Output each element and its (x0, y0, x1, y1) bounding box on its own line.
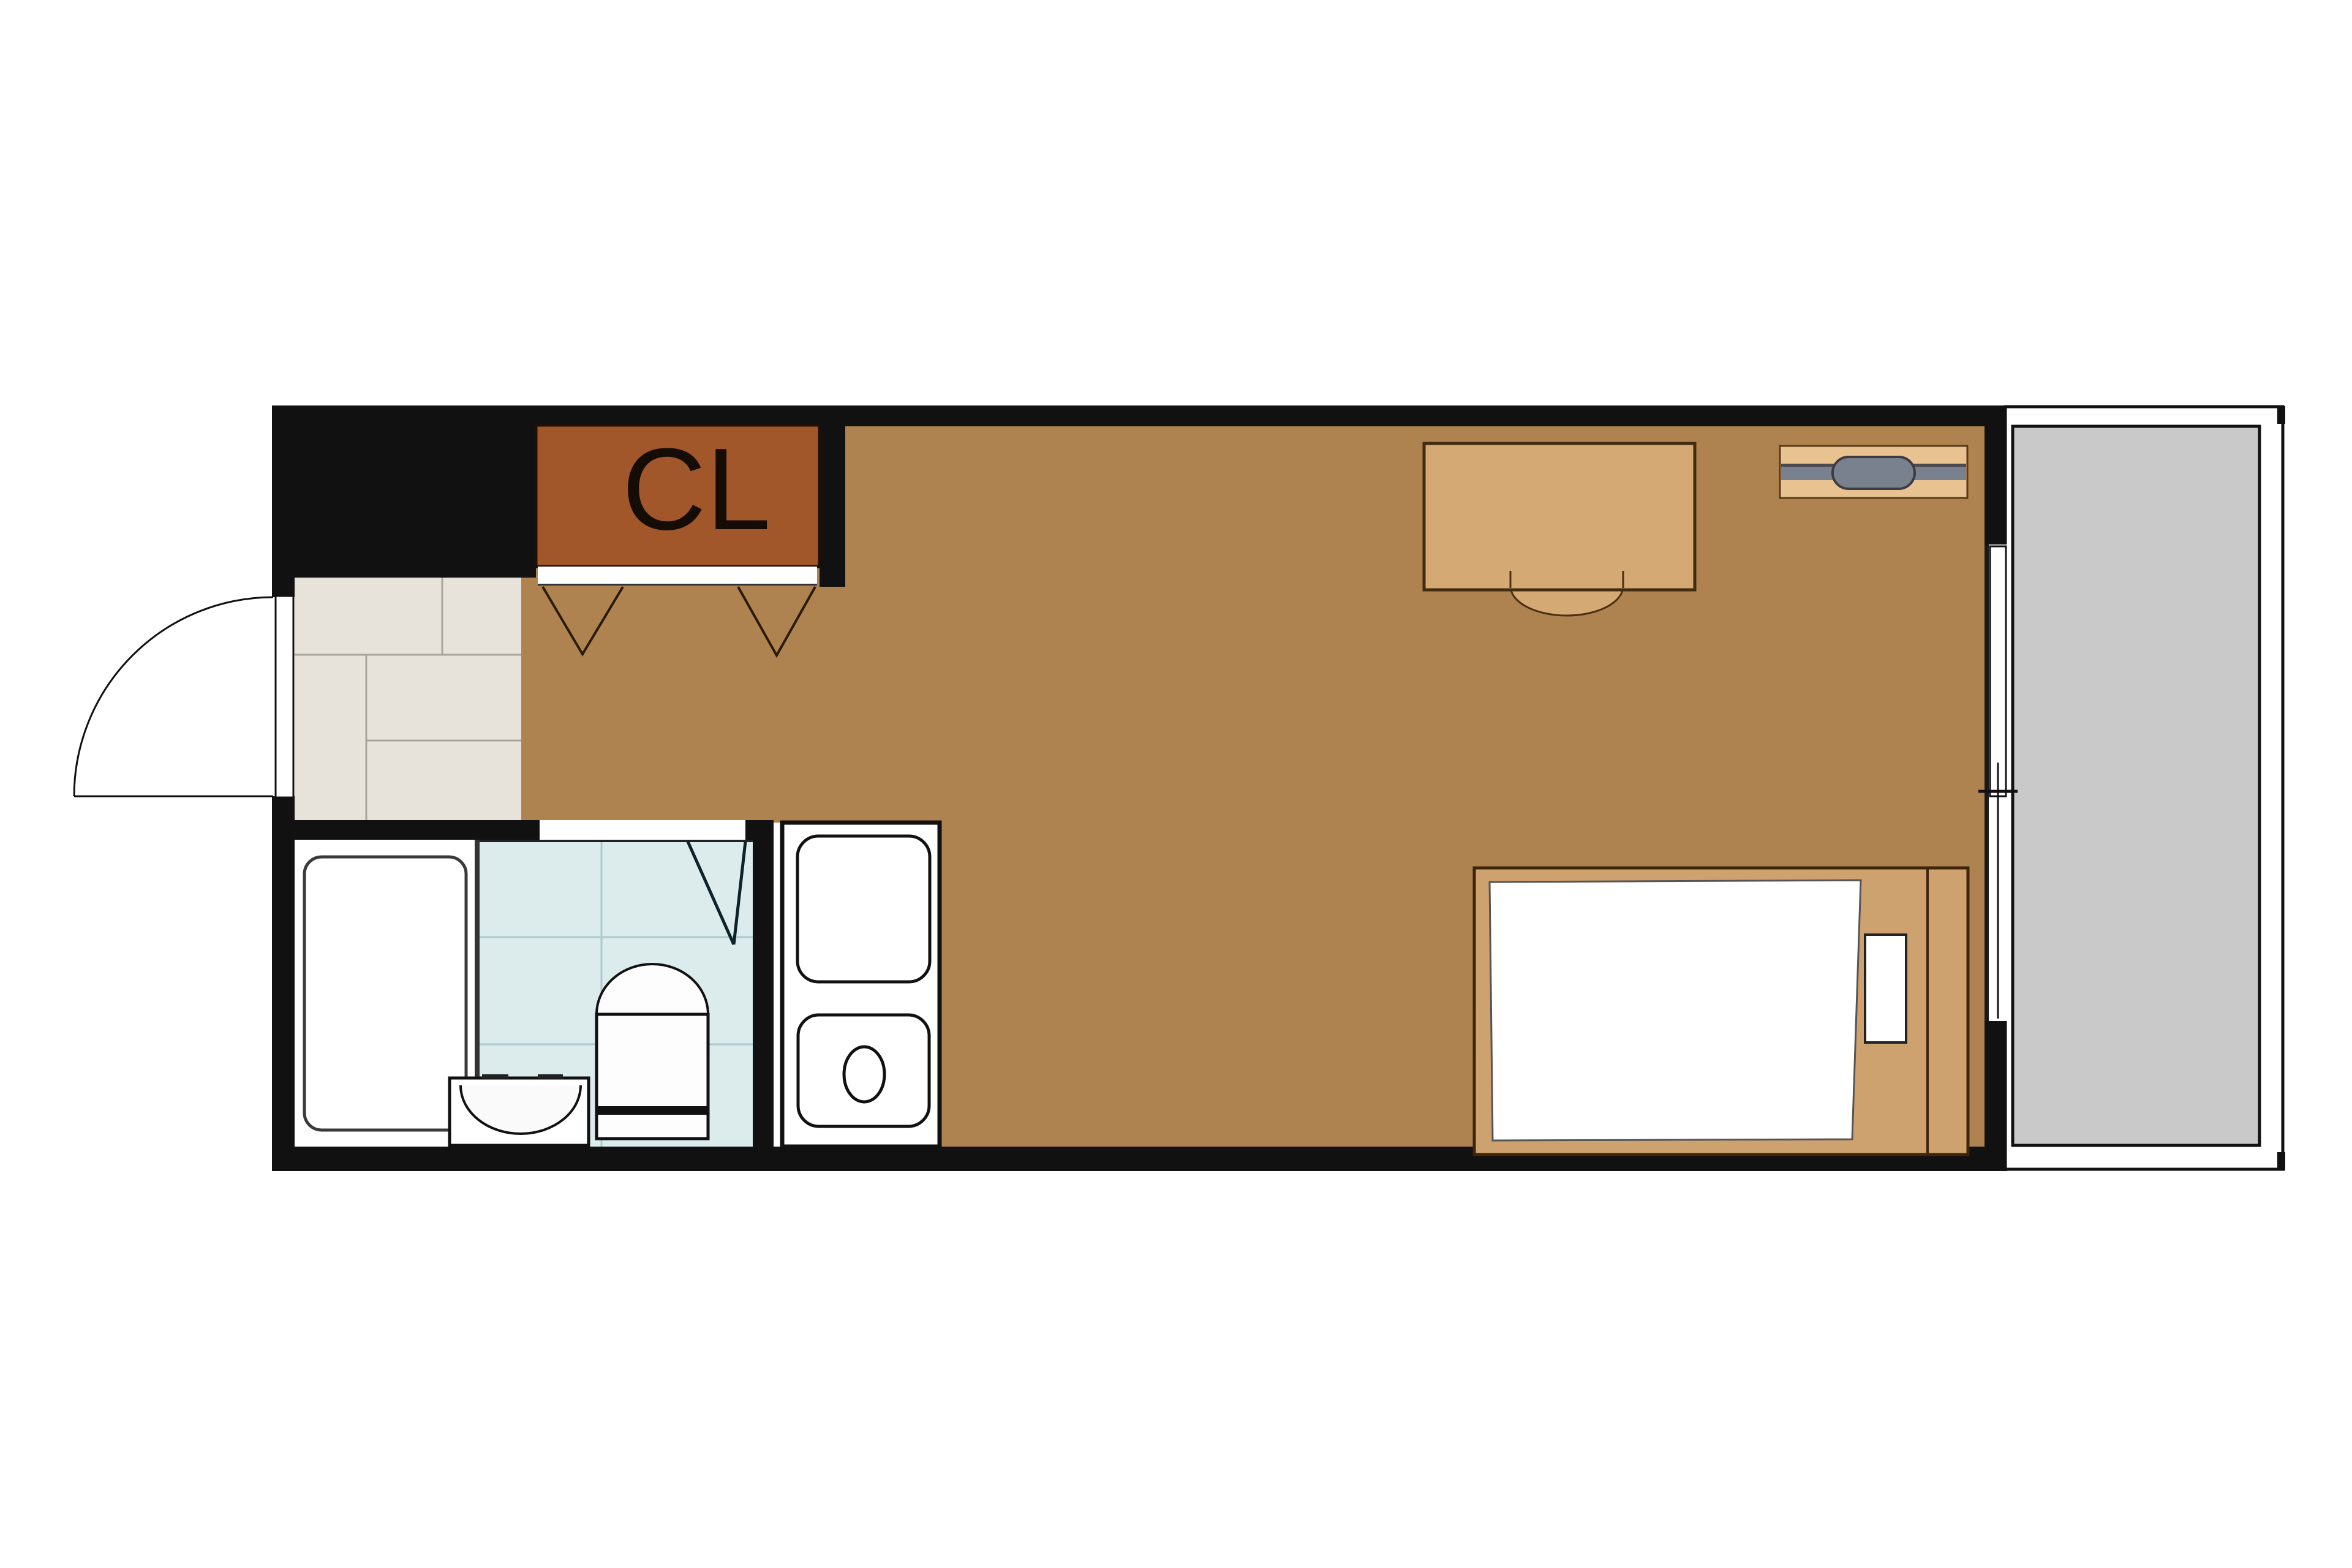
svg-text:CL: CL (622, 424, 771, 554)
